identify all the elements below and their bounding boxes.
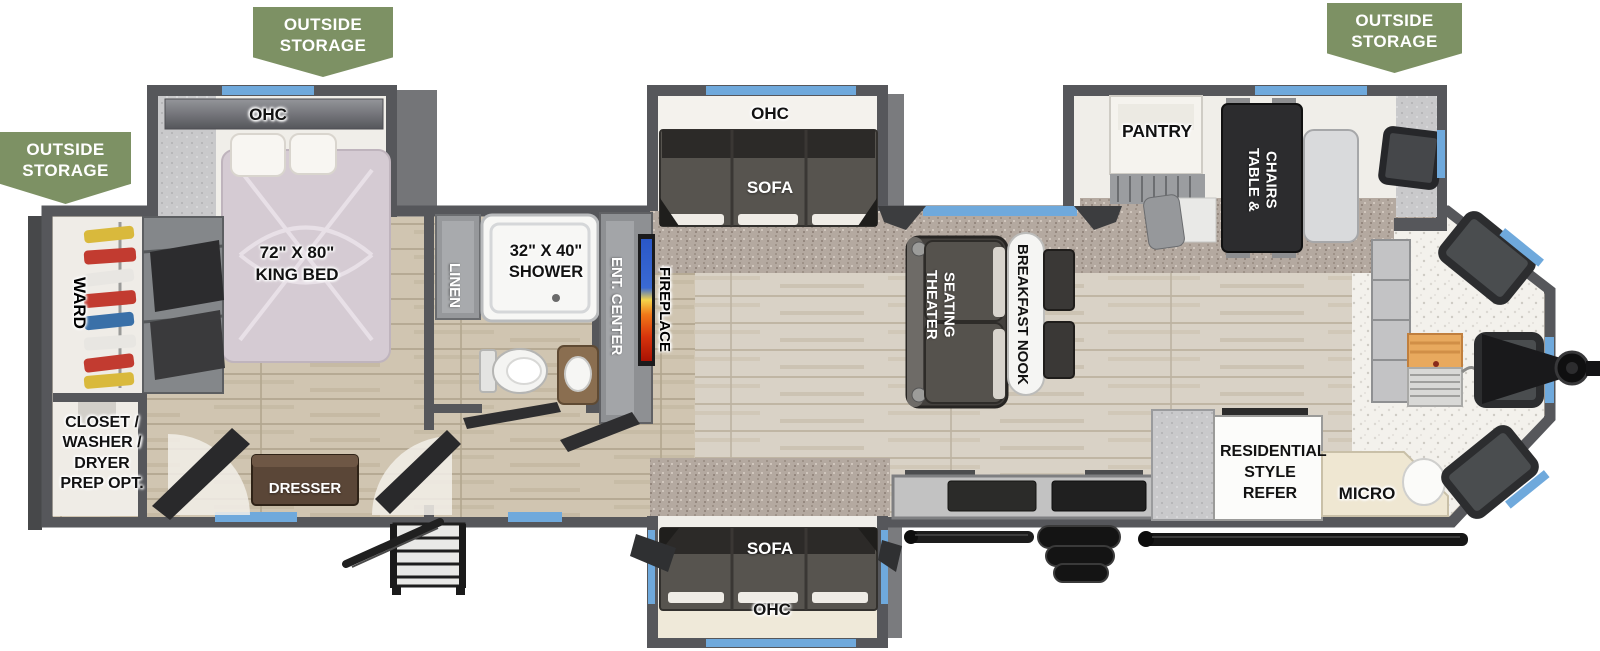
shower-label: 32" X 40" SHOWER — [492, 241, 600, 283]
rear-shadow — [28, 216, 42, 530]
sofa-bottom-label: SOFA — [740, 538, 800, 560]
theater-seating-label: THEATER SEATING — [916, 256, 964, 354]
sofa-top-label: SOFA — [740, 177, 800, 199]
kitchen-counter — [893, 470, 1165, 518]
breakfast-nook-label: BREAKFAST NOOK — [1014, 238, 1038, 390]
carpet-bottom — [650, 458, 890, 516]
ohc-bedroom-label: OHC — [238, 104, 298, 126]
refer-label: RESIDENTIAL STYLE REFER — [1220, 441, 1320, 504]
dining-bench — [1304, 130, 1358, 242]
dresser-label: DRESSER — [253, 479, 357, 498]
rv-floorplan: OUTSIDE STORAGE OUTSIDE STORAGE OUTSIDE … — [0, 0, 1600, 651]
ward-label: WARD — [70, 257, 94, 349]
table-chairs-label: TABLE & CHAIRS — [1240, 132, 1284, 228]
micro-label: MICRO — [1330, 483, 1404, 505]
main-door-steps — [1038, 526, 1120, 582]
ent-center-label: ENT. CENTER — [608, 250, 634, 362]
linen-label: LINEN — [446, 246, 470, 324]
fireplace-strip — [641, 239, 652, 361]
cooktop — [948, 481, 1036, 511]
fireplace-label: FIREPLACE — [656, 263, 680, 357]
kitchen-sink — [1052, 481, 1146, 511]
shower-drain — [552, 294, 560, 302]
entry-steps — [346, 522, 466, 595]
slide-window — [1381, 129, 1441, 187]
ohc-sofa-top-label: OHC — [740, 103, 800, 125]
king-bed-label: 72" X 80" KING BED — [222, 242, 372, 286]
closet-washer-dryer-label: CLOSET / WASHER / DRYER PREP OPT. — [48, 413, 156, 495]
pantry-label: PANTRY — [1112, 120, 1202, 142]
bath-sink — [565, 357, 591, 391]
ohc-sofa-bottom-label: OHC — [742, 599, 802, 621]
banner-text: OUTSIDE — [253, 14, 393, 35]
floorplan-graphic — [0, 0, 1600, 651]
dining-chair — [1143, 194, 1186, 251]
bed-slide-depth — [397, 90, 437, 216]
